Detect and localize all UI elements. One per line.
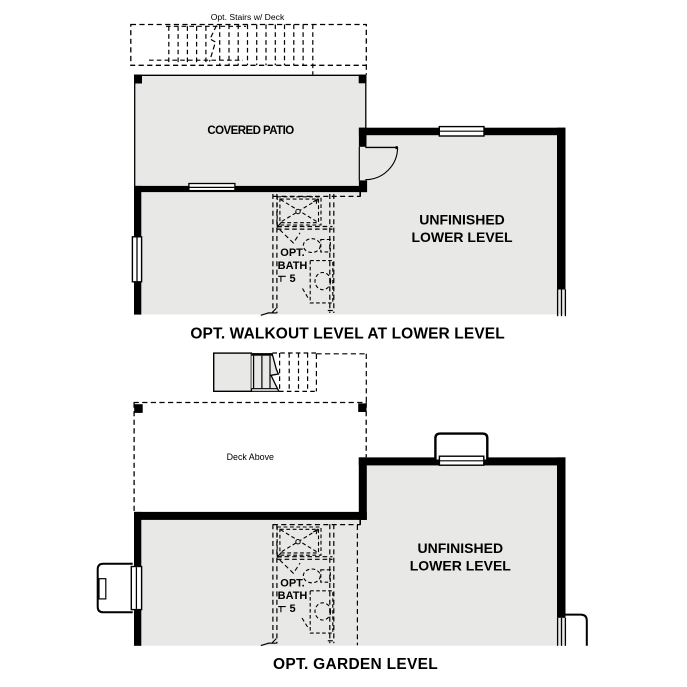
svg-text:COVERED PATIO: COVERED PATIO [207,125,294,137]
svg-text:5: 5 [289,603,295,615]
svg-text:Deck Above: Deck Above [227,452,274,462]
svg-text:UNFINISHED: UNFINISHED [419,211,505,227]
svg-text:OPT. GARDEN LEVEL: OPT. GARDEN LEVEL [273,656,438,673]
svg-text:OPT.: OPT. [280,577,304,589]
svg-text:LOWER LEVEL: LOWER LEVEL [410,557,512,573]
svg-text:LOWER LEVEL: LOWER LEVEL [411,229,513,245]
svg-text:OPT. WALKOUT LEVEL AT LOWER LE: OPT. WALKOUT LEVEL AT LOWER LEVEL [190,326,505,343]
svg-text:BATH: BATH [278,260,308,272]
svg-text:OPT.: OPT. [280,247,304,259]
svg-text:BATH: BATH [278,590,308,602]
svg-text:Opt. Stairs w/ Deck: Opt. Stairs w/ Deck [211,12,285,22]
svg-text:5: 5 [289,273,295,285]
svg-text:UNFINISHED: UNFINISHED [418,540,504,556]
